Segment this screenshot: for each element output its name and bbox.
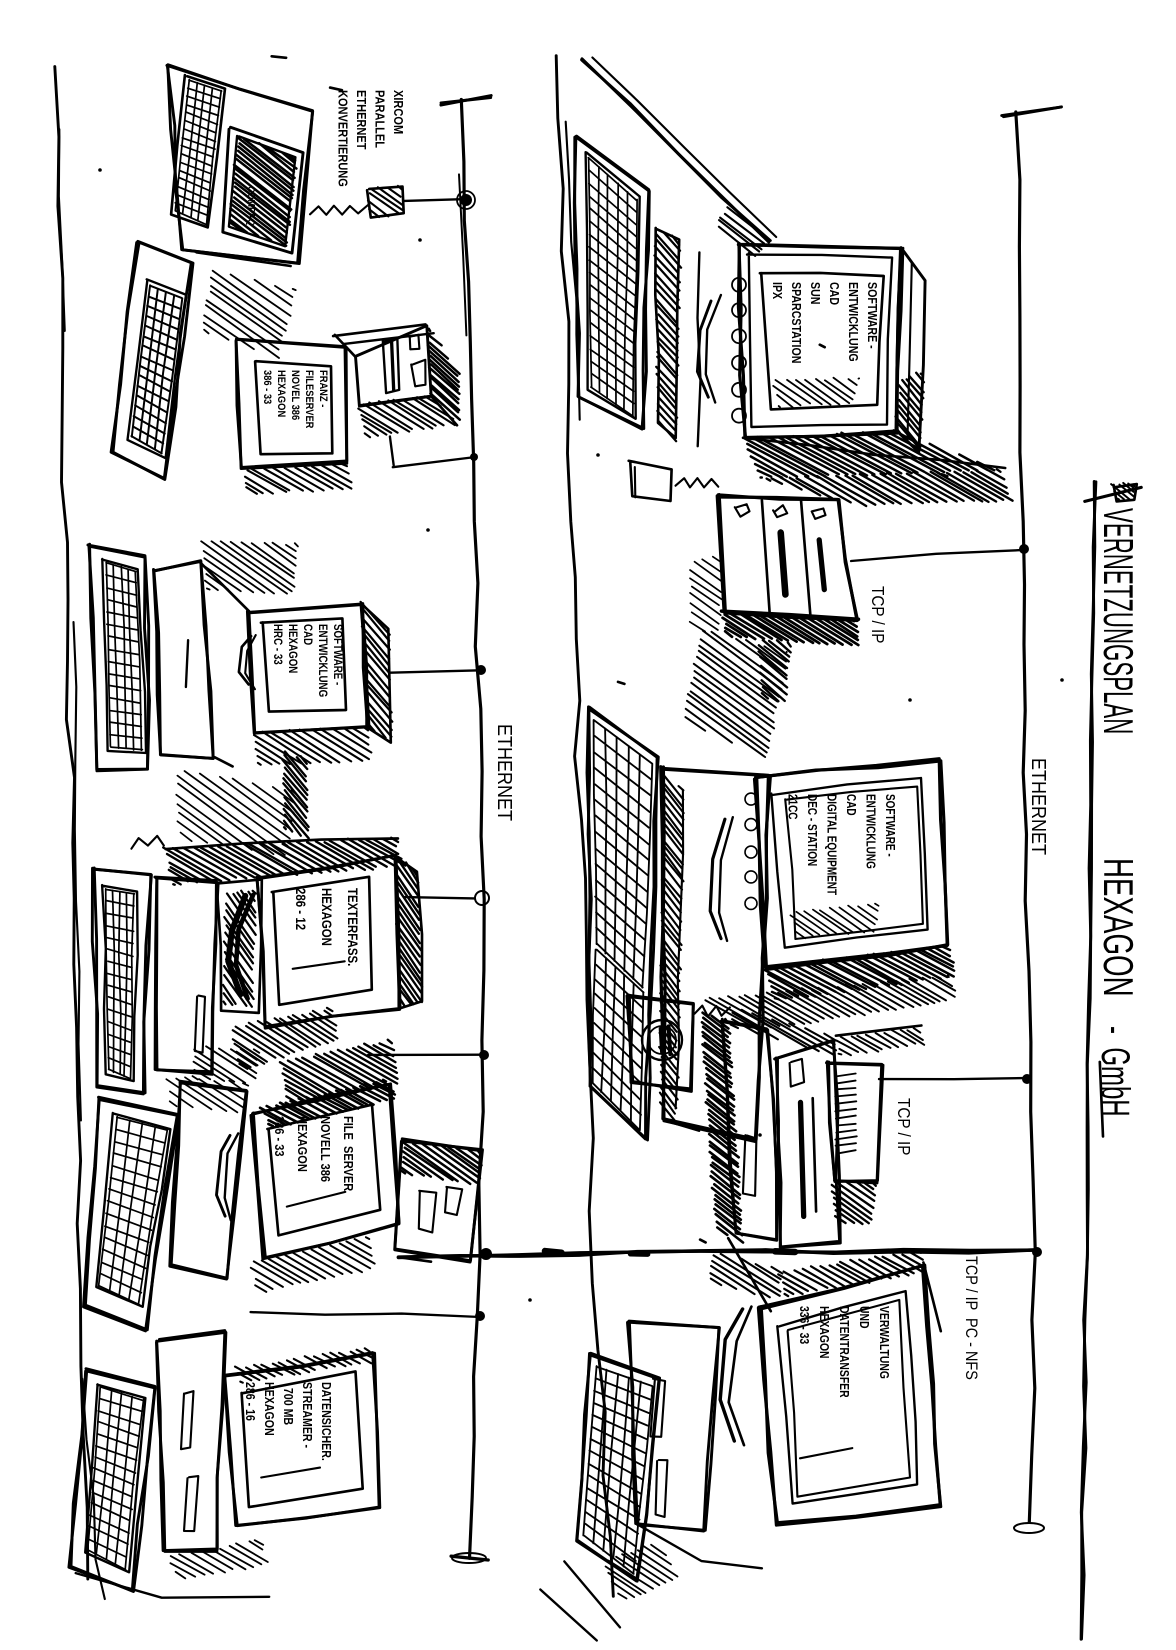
svg-text:ETHERNET: ETHERNET bbox=[1027, 758, 1049, 855]
svg-text:TCP / IP: TCP / IP bbox=[894, 1098, 914, 1155]
svg-text:TCP / IP PC - NFS: TCP / IP PC - NFS bbox=[962, 1256, 980, 1380]
svg-text:VERNETZUNGSPLAN: VERNETZUNGSPLAN bbox=[1094, 508, 1140, 734]
svg-text:COMPAQ: COMPAQ bbox=[245, 186, 257, 226]
svg-text:HEXAGON: HEXAGON bbox=[1095, 858, 1142, 997]
svg-text:ETHERNET: ETHERNET bbox=[493, 724, 515, 821]
svg-text:- GmbH: - GmbH bbox=[1094, 1026, 1139, 1117]
svg-text:TCP / IP: TCP / IP bbox=[868, 586, 888, 643]
